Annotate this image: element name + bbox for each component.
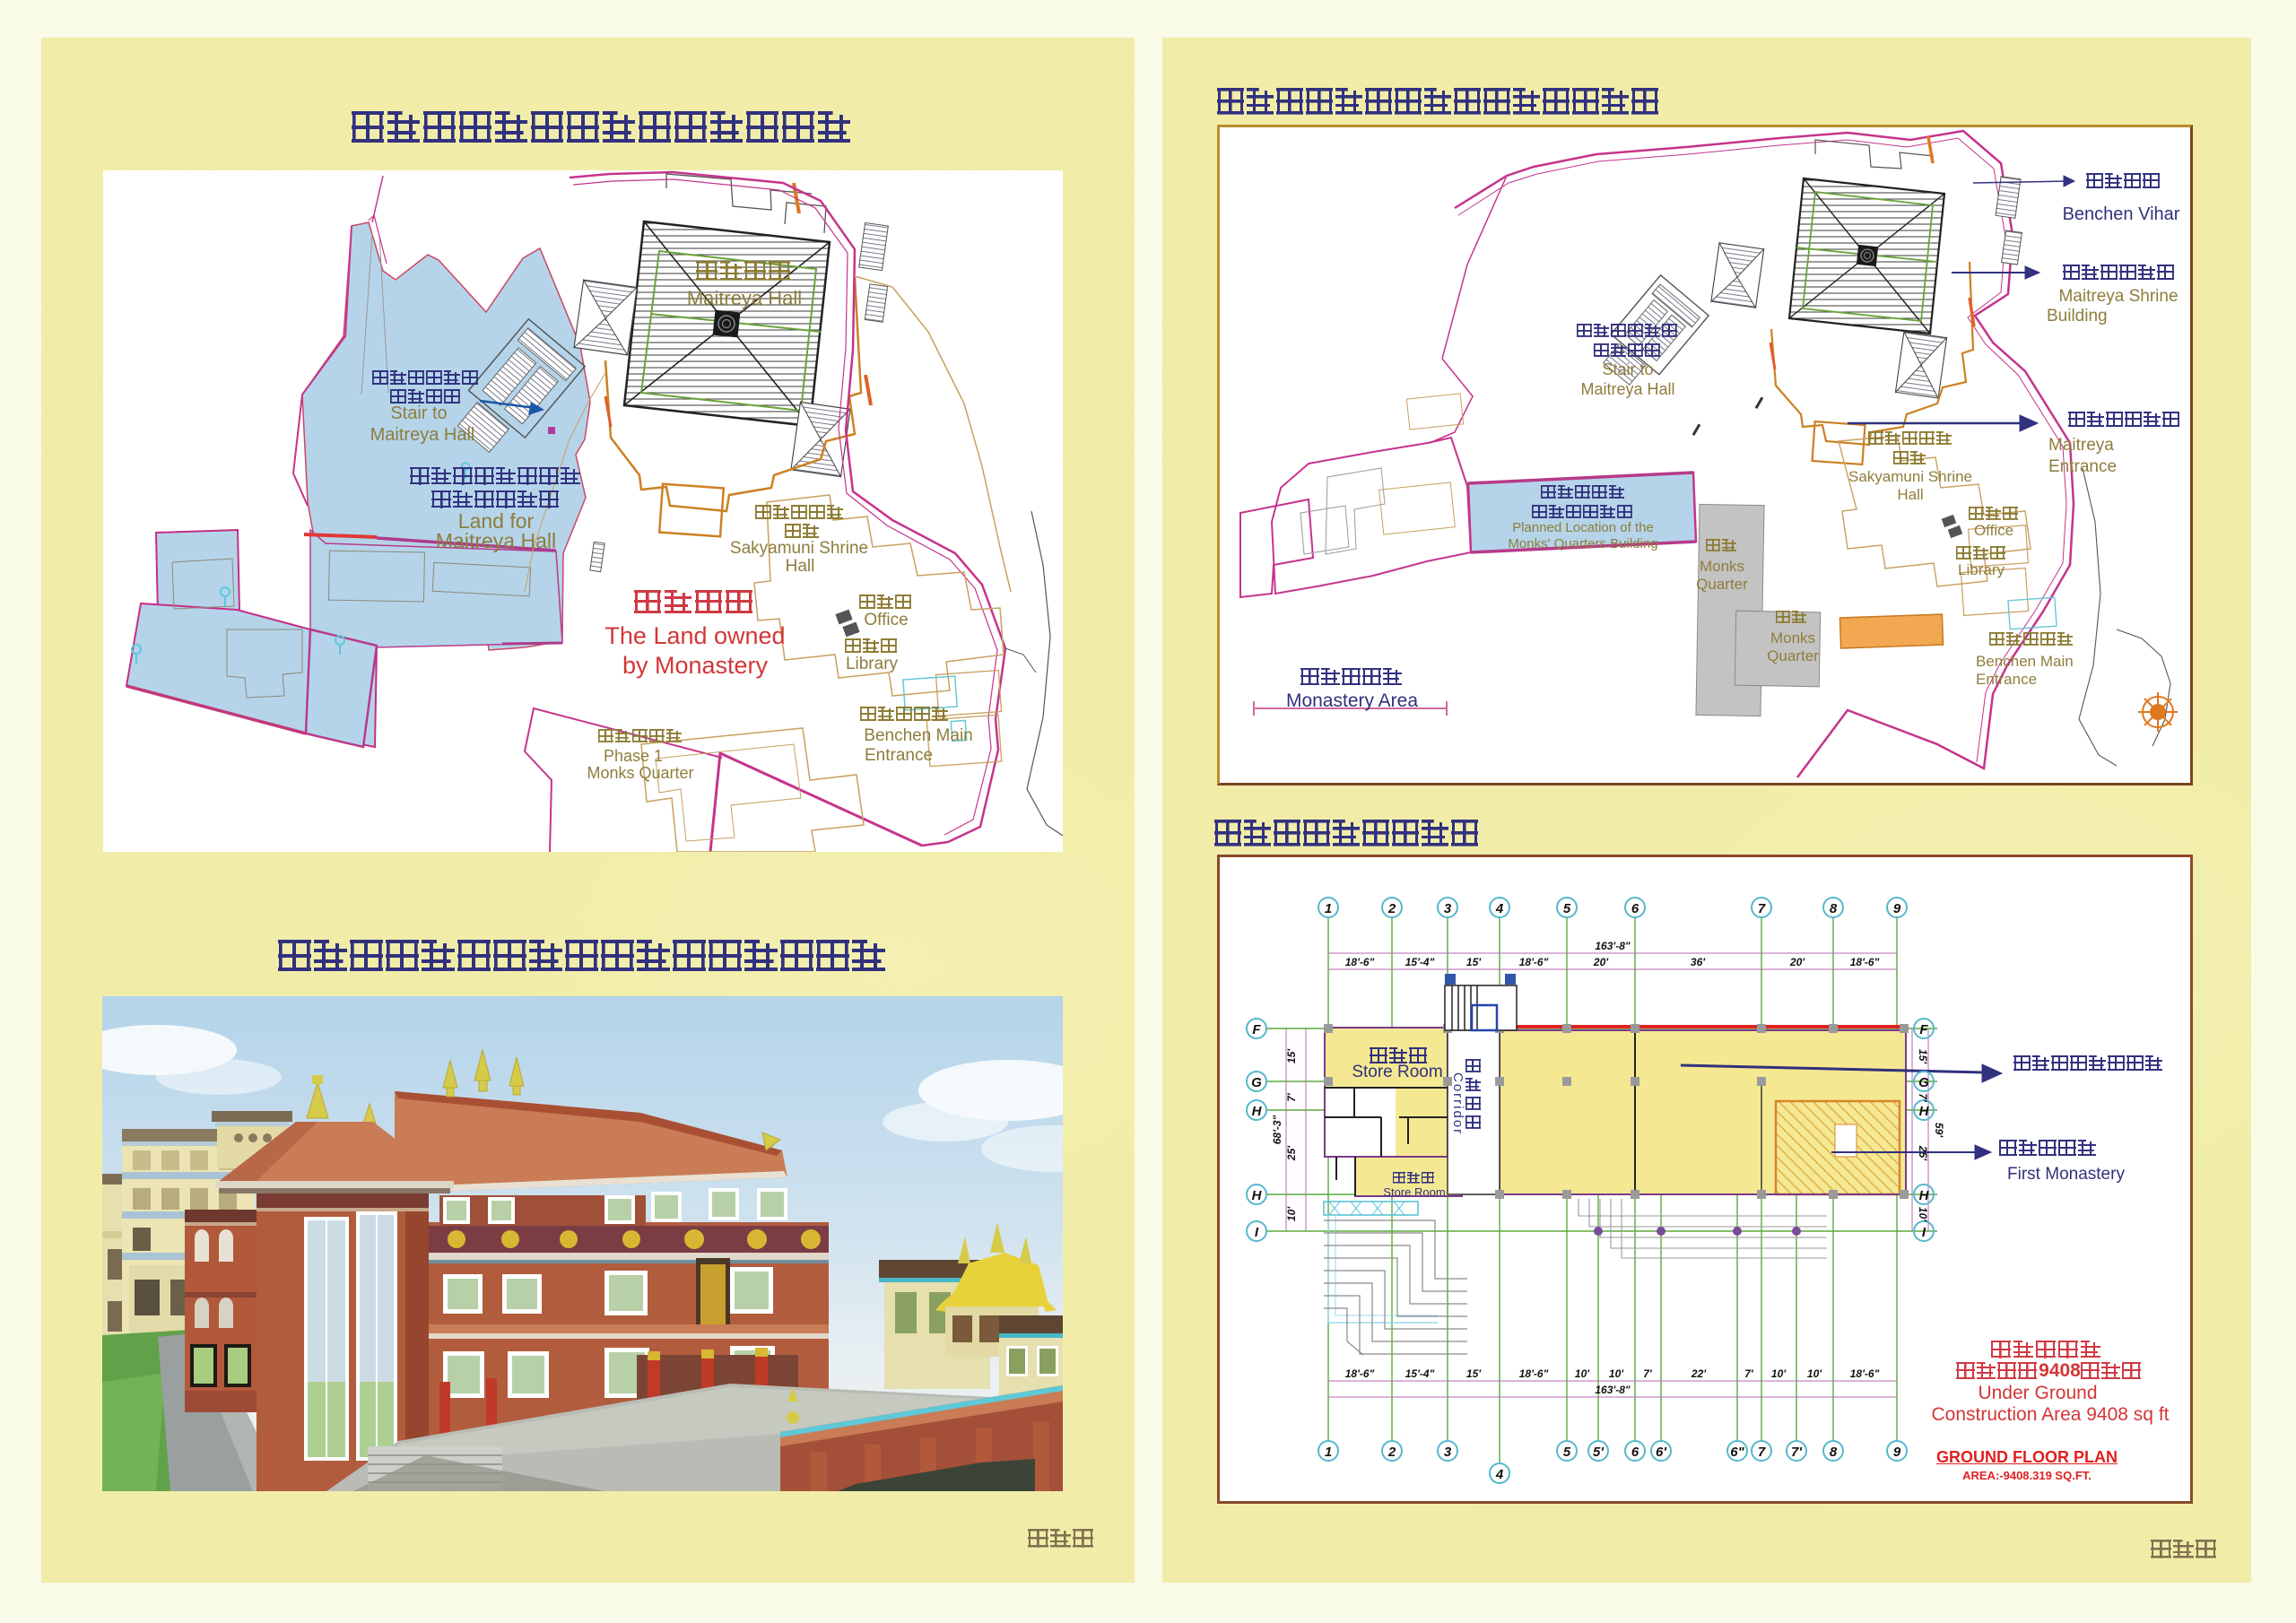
svg-text:10': 10': [1285, 1206, 1298, 1221]
svg-text:68'-3": 68'-3": [1271, 1115, 1283, 1144]
svg-text:59': 59': [1933, 1123, 1945, 1138]
svg-text:5: 5: [1563, 1445, 1571, 1460]
svg-text:H: H: [1919, 1188, 1930, 1203]
svg-text:18'-6": 18'-6": [1519, 1367, 1549, 1380]
svg-text:18'-6": 18'-6": [1519, 956, 1549, 968]
svg-text:15': 15': [1917, 1049, 1929, 1064]
svg-text:15'-4": 15'-4": [1405, 956, 1435, 968]
svg-text:18'-6": 18'-6": [1345, 956, 1375, 968]
svg-text:10': 10': [1609, 1367, 1624, 1380]
svg-text:15'-4": 15'-4": [1405, 1367, 1435, 1380]
svg-text:4: 4: [1495, 1467, 1504, 1482]
svg-text:G: G: [1918, 1075, 1929, 1090]
svg-text:5': 5': [1593, 1445, 1604, 1460]
svg-text:163'-8": 163'-8": [1595, 940, 1631, 952]
svg-text:2: 2: [1387, 901, 1396, 916]
svg-text:2: 2: [1387, 1445, 1396, 1460]
svg-text:10': 10': [1917, 1207, 1929, 1222]
svg-text:H: H: [1919, 1104, 1930, 1119]
svg-text:15': 15': [1466, 1367, 1482, 1380]
svg-text:7: 7: [1758, 901, 1766, 916]
svg-text:3: 3: [1444, 901, 1452, 916]
svg-text:7': 7': [1285, 1092, 1298, 1102]
svg-text:10': 10': [1575, 1367, 1590, 1380]
svg-text:7': 7': [1643, 1367, 1653, 1380]
svg-text:H: H: [1252, 1188, 1263, 1203]
svg-text:15': 15': [1466, 956, 1482, 968]
svg-text:6": 6": [1730, 1445, 1744, 1460]
svg-text:5: 5: [1563, 901, 1571, 916]
svg-text:6': 6': [1656, 1445, 1666, 1460]
svg-text:7': 7': [1791, 1445, 1802, 1460]
svg-text:9: 9: [1893, 1445, 1901, 1460]
svg-text:1: 1: [1325, 901, 1332, 916]
svg-text:1: 1: [1325, 1445, 1332, 1460]
svg-text:6: 6: [1631, 1445, 1639, 1460]
svg-text:F: F: [1919, 1022, 1928, 1037]
svg-text:H: H: [1252, 1104, 1263, 1119]
svg-text:20': 20': [1789, 956, 1805, 968]
svg-text:F: F: [1252, 1022, 1261, 1037]
svg-text:25': 25': [1917, 1145, 1929, 1161]
svg-text:18'-6": 18'-6": [1850, 1367, 1880, 1380]
svg-text:8: 8: [1830, 1445, 1838, 1460]
svg-text:3: 3: [1444, 1445, 1452, 1460]
svg-text:I: I: [1255, 1225, 1259, 1240]
svg-text:18'-6": 18'-6": [1850, 956, 1880, 968]
svg-text:8: 8: [1830, 901, 1838, 916]
svg-text:9: 9: [1893, 901, 1901, 916]
svg-text:25': 25': [1285, 1145, 1298, 1161]
svg-text:10': 10': [1807, 1367, 1822, 1380]
svg-text:G: G: [1251, 1075, 1262, 1090]
svg-text:7': 7': [1917, 1093, 1929, 1103]
svg-text:7: 7: [1758, 1445, 1766, 1460]
svg-text:7': 7': [1744, 1367, 1754, 1380]
svg-text:22': 22': [1691, 1367, 1707, 1380]
svg-text:20': 20': [1593, 956, 1609, 968]
svg-text:I: I: [1922, 1225, 1926, 1240]
svg-text:18'-6": 18'-6": [1345, 1367, 1375, 1380]
svg-text:10': 10': [1771, 1367, 1787, 1380]
svg-text:4: 4: [1495, 901, 1504, 916]
svg-text:163'-8": 163'-8": [1595, 1384, 1631, 1396]
svg-text:6: 6: [1631, 901, 1639, 916]
svg-text:15': 15': [1285, 1048, 1298, 1063]
svg-text:36': 36': [1691, 956, 1706, 968]
